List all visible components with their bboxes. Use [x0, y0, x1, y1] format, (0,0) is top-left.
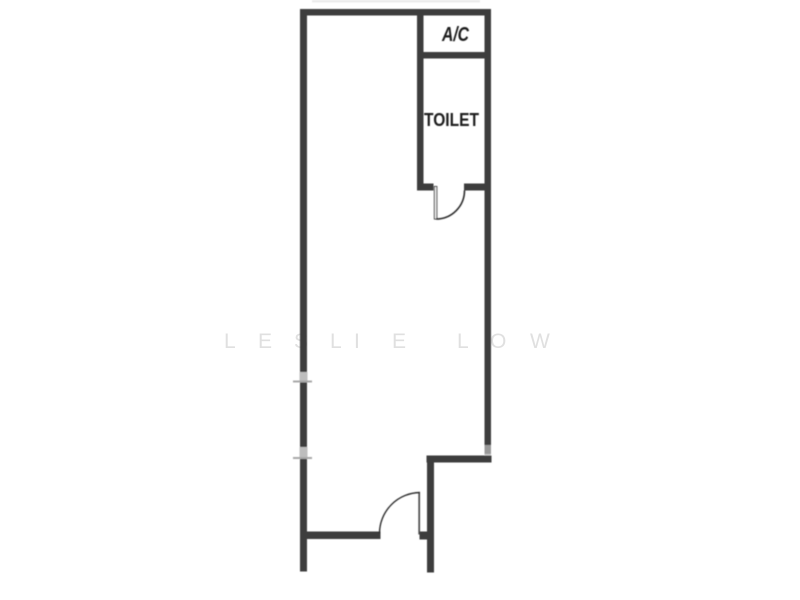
- svg-text:TOILET: TOILET: [424, 110, 479, 130]
- svg-text:E: E: [258, 330, 272, 353]
- svg-text:A/C: A/C: [441, 24, 469, 46]
- svg-text:L: L: [457, 330, 469, 353]
- svg-text:I: I: [354, 330, 360, 353]
- svg-text:E: E: [392, 330, 406, 353]
- svg-text:L: L: [330, 330, 342, 353]
- svg-text:O: O: [490, 330, 506, 353]
- svg-text:W: W: [530, 330, 550, 353]
- svg-text:L: L: [224, 330, 236, 353]
